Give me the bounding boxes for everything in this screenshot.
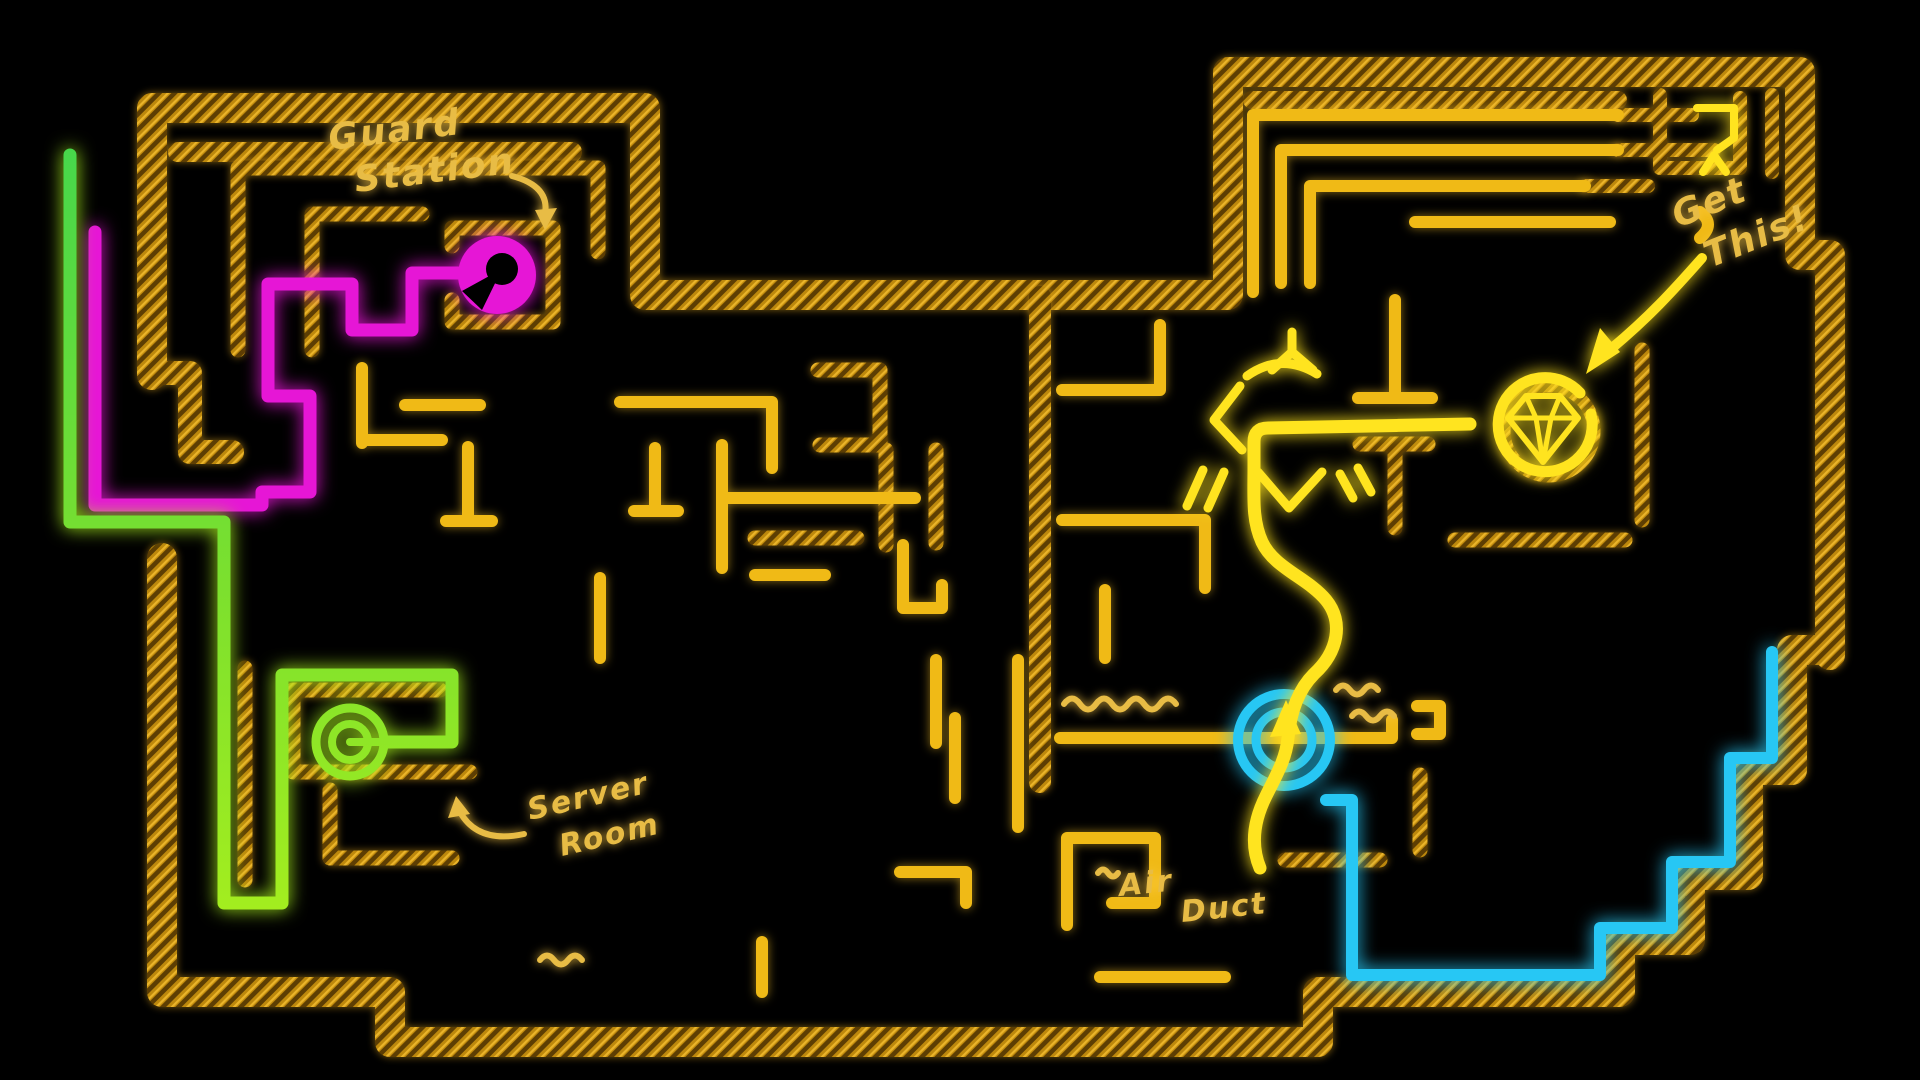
slash-marks (1187, 470, 1224, 508)
get-this-arrow (1612, 258, 1702, 348)
maze-line-segment (1417, 706, 1440, 734)
maze-line-segment (620, 402, 772, 468)
server-room-arrow (460, 812, 524, 836)
guard-station-arrow (512, 176, 546, 214)
maze-line-segment (900, 872, 966, 903)
airflow-scribble (1064, 699, 1176, 710)
airflow-scribble (1336, 686, 1378, 695)
wall-segment (152, 373, 232, 452)
air-duct-label-line1: Air (1115, 863, 1175, 904)
server-room-label: Server Room (448, 766, 663, 864)
maze-line-segment (1310, 186, 1585, 283)
air-duct-label-line2: Duct (1179, 886, 1269, 930)
maze-line-segment (1062, 520, 1205, 588)
check-mark (1258, 472, 1322, 508)
yellow-route-path (1254, 424, 1470, 868)
small-scribble (1098, 870, 1118, 877)
route-green (70, 155, 452, 903)
cyan-route-path (1326, 652, 1772, 975)
heist-map: Guard Station Server Room Air Duct Get T… (0, 0, 1920, 1080)
maze-line-segment (903, 545, 942, 608)
tick-marks (1340, 468, 1371, 498)
maze-line-segment (1062, 325, 1160, 390)
green-route-path (70, 155, 452, 903)
angle-mark (1214, 386, 1242, 450)
wall-segment (818, 370, 880, 445)
get-this-arrowhead (1586, 328, 1620, 374)
server-room-arrowhead (448, 796, 470, 818)
maze-line-segment (1060, 720, 1392, 738)
small-scribble (540, 956, 582, 965)
air-duct-label: Air Duct (1115, 863, 1269, 930)
